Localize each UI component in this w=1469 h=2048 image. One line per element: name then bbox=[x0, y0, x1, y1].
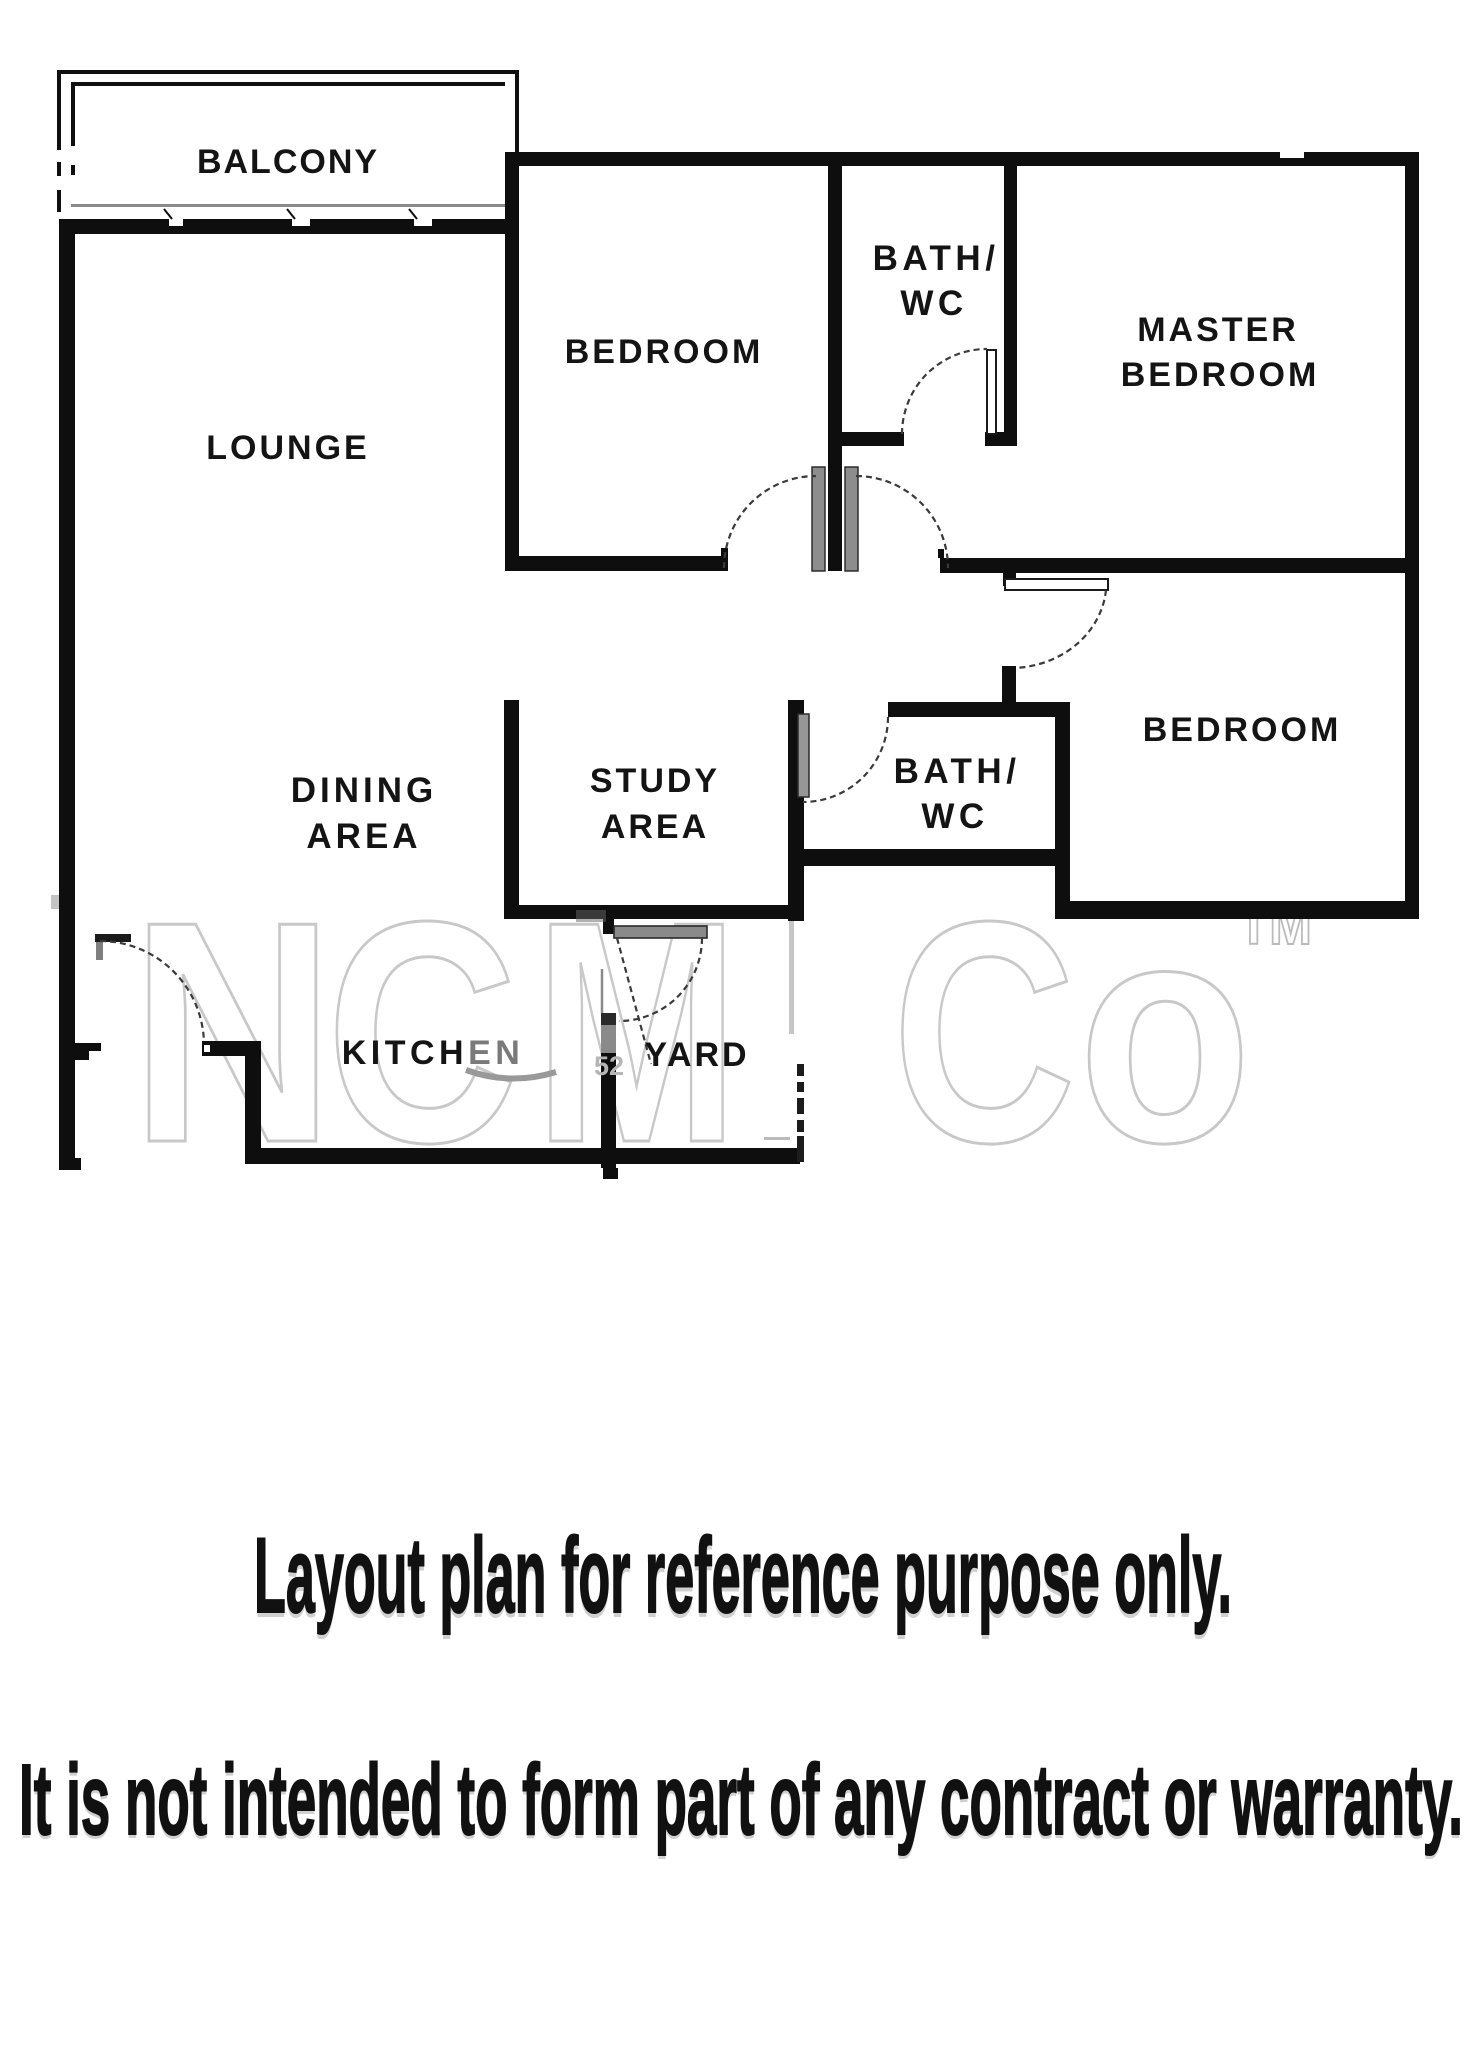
svg-text:WC: WC bbox=[900, 284, 967, 323]
svg-text:C: C bbox=[892, 856, 1076, 1208]
svg-text:52: 52 bbox=[594, 1051, 624, 1081]
svg-text:BATH/: BATH/ bbox=[894, 752, 1021, 791]
svg-text:KITCHEN: KITCHEN bbox=[342, 1034, 525, 1072]
svg-text:BEDROOM: BEDROOM bbox=[565, 333, 764, 371]
svg-text:BALCONY: BALCONY bbox=[197, 143, 379, 181]
svg-text:DINING: DINING bbox=[291, 771, 438, 810]
svg-text:WC: WC bbox=[921, 797, 988, 836]
svg-text:LOUNGE: LOUNGE bbox=[206, 429, 369, 467]
svg-text:Layout plan for reference purp: Layout plan for reference purpose only. bbox=[254, 1515, 1232, 1635]
svg-text:YARD: YARD bbox=[644, 1036, 749, 1074]
svg-text:It is not intended to form par: It is not intended to form part of any c… bbox=[19, 1744, 1463, 1856]
svg-text:BATH/: BATH/ bbox=[873, 239, 1000, 278]
svg-text:BEDROOM: BEDROOM bbox=[1121, 356, 1320, 394]
svg-text:AREA: AREA bbox=[306, 817, 421, 856]
svg-text:STUDY: STUDY bbox=[590, 762, 720, 800]
svg-text:MASTER: MASTER bbox=[1137, 311, 1299, 349]
svg-text:AREA: AREA bbox=[601, 808, 709, 846]
svg-text:BEDROOM: BEDROOM bbox=[1143, 711, 1342, 749]
